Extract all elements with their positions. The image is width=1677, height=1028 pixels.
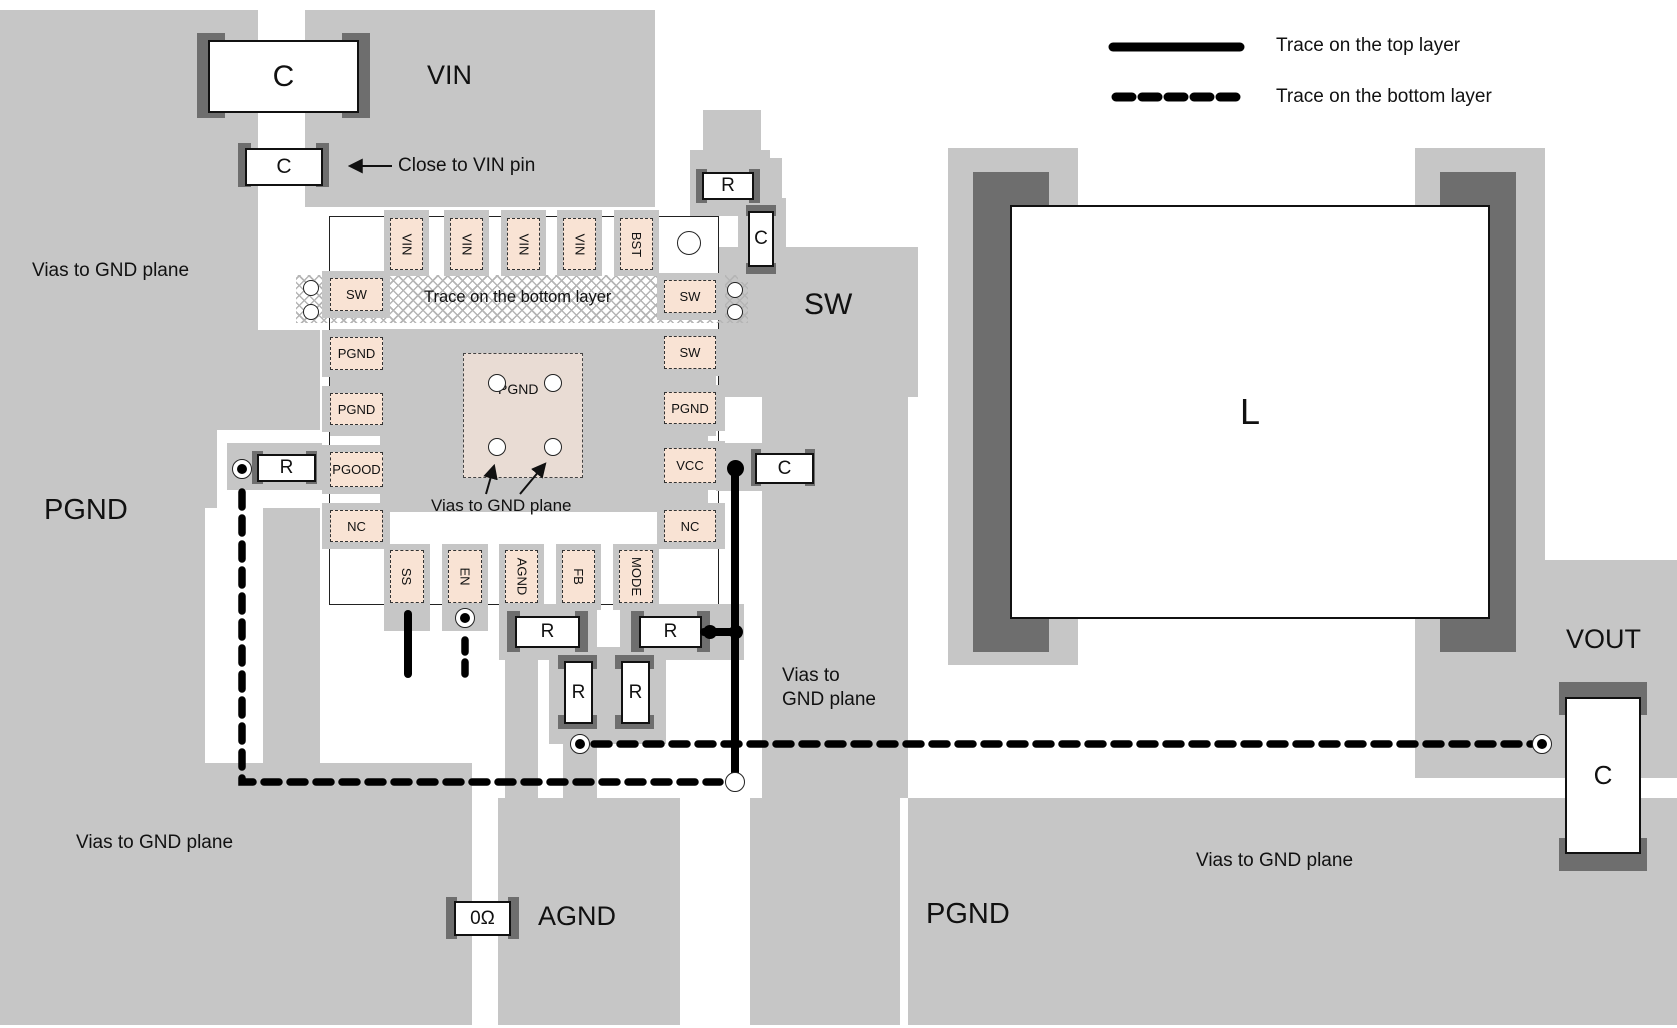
pin-nc-right: NC: [664, 510, 716, 542]
pin-sw-left: SW: [330, 278, 383, 311]
sw-via: [727, 282, 743, 298]
plane-bottom-right-pgnd: [750, 798, 1677, 1025]
annotation-close-to-vin: Close to VIN pin: [398, 155, 535, 177]
pin-sw-right-1: SW: [664, 280, 716, 313]
net-label-vin: VIN: [427, 60, 472, 91]
pin-agnd: AGND: [505, 550, 538, 603]
pin-vcc: VCC: [664, 448, 716, 483]
junction-dot: [703, 625, 717, 639]
annotation-vias-bottom-left: Vias to GND plane: [76, 832, 233, 854]
legend-label-top-layer: Trace on the top layer: [1276, 35, 1460, 57]
pin-en: EN: [448, 550, 482, 603]
thermal-via: [544, 438, 562, 456]
res-mode: R: [639, 616, 702, 648]
junction-dot: [727, 460, 744, 477]
sw-via: [303, 304, 319, 320]
ic-center-pad: [463, 353, 583, 478]
pin-pgnd-left-2: PGND: [330, 393, 383, 425]
annotation-vias-ic: Vias to GND plane: [431, 496, 571, 516]
pin-ss: SS: [390, 550, 424, 603]
pin-nc-left: NC: [330, 510, 383, 542]
net-label-agnd: AGND: [538, 901, 616, 932]
res-zero-ohm: 0Ω: [454, 901, 511, 936]
sw-via: [727, 304, 743, 320]
res-feedback-top: R: [515, 616, 580, 648]
junction-dot: [729, 625, 743, 639]
annotation-trace-bottom-layer: Trace on the bottom layer: [424, 288, 611, 307]
pin-vin-2: VIN: [450, 218, 483, 270]
pcb-layout-diagram: VIN VIN VIN VIN BST SW PGND PGND PGOOD N…: [0, 0, 1677, 1028]
cap-bst: C: [748, 211, 774, 267]
trace-via-vout: [1532, 734, 1552, 754]
cap-output: C: [1565, 697, 1641, 854]
pin-pgood: PGOOD: [330, 452, 383, 487]
net-label-vout: VOUT: [1566, 624, 1641, 655]
pin-mode: MODE: [619, 550, 653, 603]
sw-via: [303, 280, 319, 296]
annotation-vias-top-left: Vias to GND plane: [32, 260, 189, 282]
pin1-marker-circle: [677, 231, 701, 255]
cap-vcc: C: [755, 453, 814, 484]
trace-via-fb: [570, 734, 590, 754]
cap-input-close: C: [245, 148, 323, 186]
pin-fb: FB: [562, 550, 595, 603]
res-pgood: R: [257, 454, 316, 482]
res-feedback-left: R: [564, 661, 593, 724]
pin-vin-4: VIN: [563, 218, 596, 270]
cutout-trace-channel: [205, 508, 263, 763]
pin-vin-1: VIN: [390, 218, 423, 270]
trace-via-pgnd-end: [725, 772, 745, 792]
res-feedback-right: R: [621, 661, 650, 724]
annotation-vias-right-line1: Vias to: [782, 664, 876, 688]
thermal-via: [544, 374, 562, 392]
inductor: L: [1010, 205, 1490, 619]
pin-pgnd-left-1: PGND: [330, 337, 383, 370]
annotation-vias-right: Vias to GND plane: [782, 664, 876, 712]
annotation-vias-bottom-right: Vias to GND plane: [1196, 850, 1353, 872]
trace-via-pgood: [232, 459, 252, 479]
net-label-sw: SW: [804, 288, 852, 322]
thermal-via: [488, 374, 506, 392]
pin-pgnd-right: PGND: [664, 392, 716, 424]
plane-bottom-left-pgnd: [0, 763, 472, 1025]
thermal-via: [488, 438, 506, 456]
pin-sw-right-2: SW: [664, 336, 716, 369]
pin-bst: BST: [620, 218, 653, 270]
net-label-pgnd-left: PGND: [44, 494, 128, 527]
pin-vin-3: VIN: [507, 218, 540, 270]
annotation-vias-right-line2: GND plane: [782, 688, 876, 712]
net-label-pgnd-bottom: PGND: [926, 898, 1010, 931]
seam-bottom-right: [900, 798, 908, 1025]
cap-input-bulk: C: [208, 40, 359, 113]
plane-left-pgnd: [0, 330, 320, 763]
trace-via-en: [455, 608, 475, 628]
legend-label-bottom-layer: Trace on the bottom layer: [1276, 86, 1492, 108]
res-bst: R: [702, 172, 754, 200]
